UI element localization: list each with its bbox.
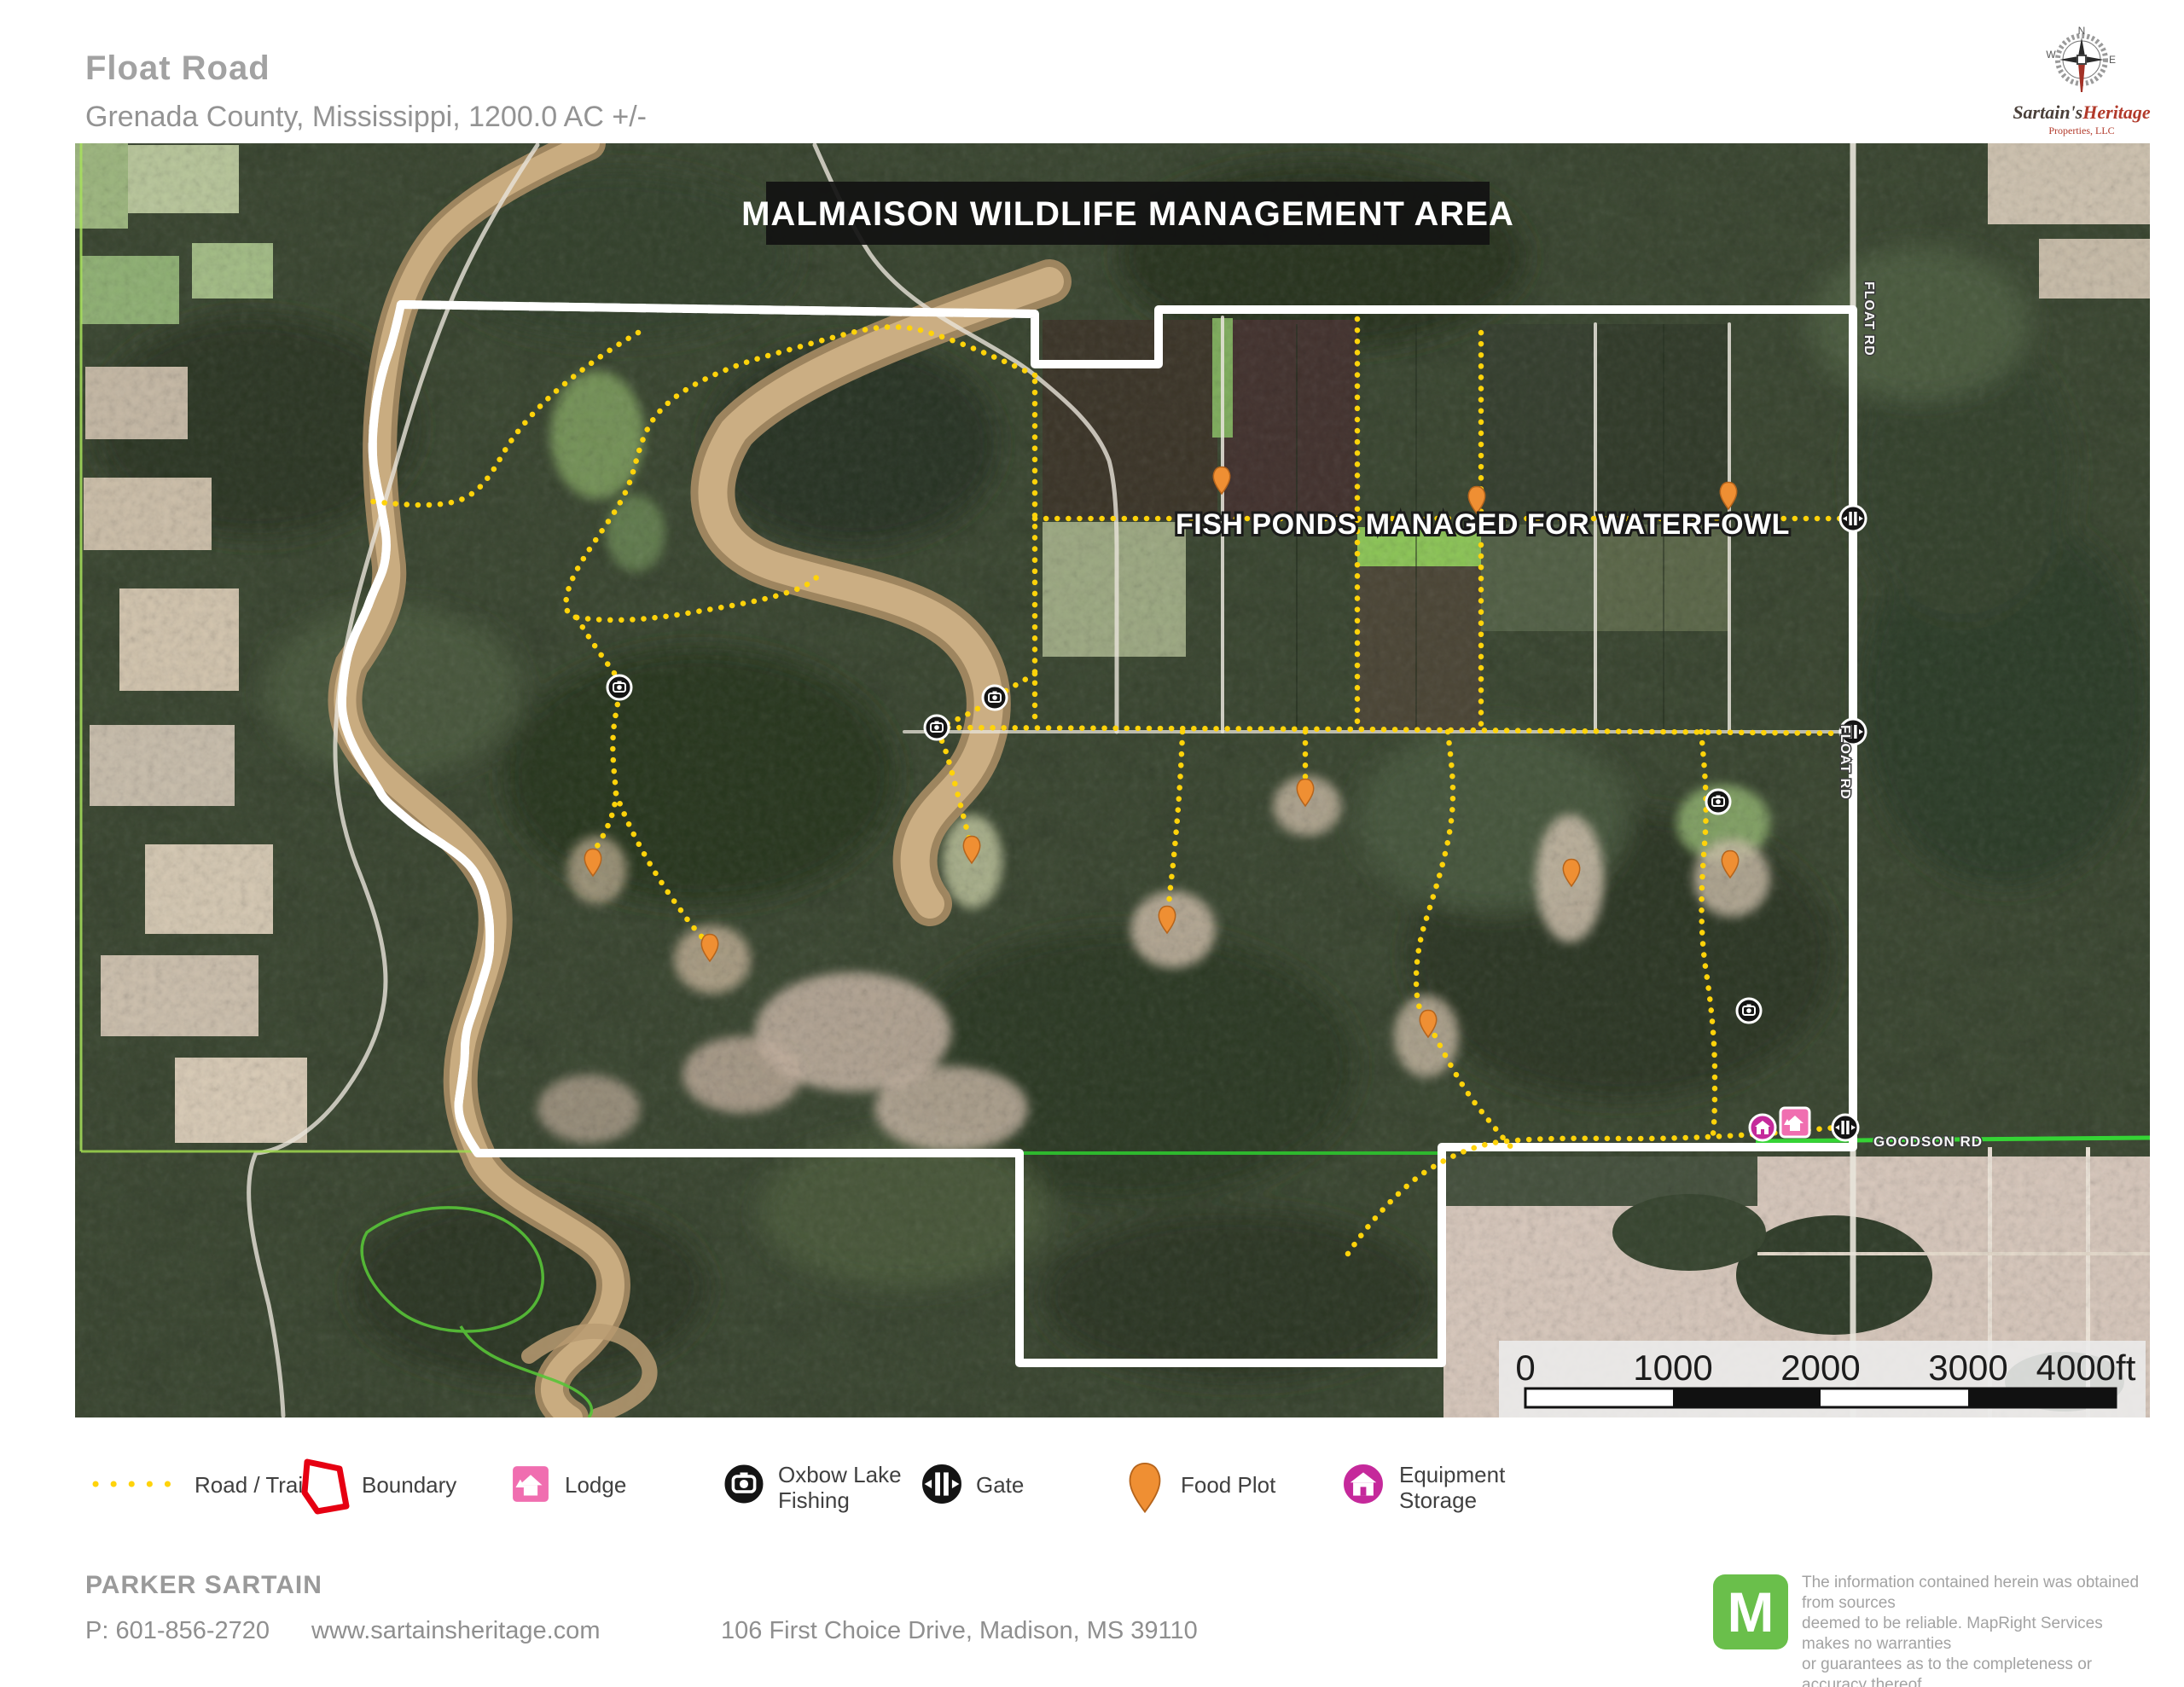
oxbow-lake-fishing-icon [1737,999,1761,1023]
float-rd-label: FLOAT RD [1862,281,1876,357]
scale-bar: 0 1000 2000 3000 4000ft [1499,1341,2146,1419]
legend-label-lodge: Lodge [565,1472,626,1498]
fish-ponds-label: FISH PONDS MANAGED FOR WATERFOWL [1176,508,1790,541]
disclaimer-text: The information contained herein was obt… [1802,1573,2150,1687]
property-map: FLOAT RD FLOAT RD GOODSON RD FISH PONDS … [0,0,2184,1687]
agent-name: PARKER SARTAIN [85,1571,322,1600]
food-plot-legend-icon [1130,1464,1159,1512]
legend-label-food-plot: Food Plot [1181,1472,1276,1498]
oxbow-lake-fishing-icon [1706,790,1730,814]
scale-tick: 4000ft [2036,1348,2136,1388]
oxbow-lake-fishing-icon [925,716,949,739]
scale-tick: 1000 [1633,1348,1712,1388]
gate-legend-icon [921,1463,964,1506]
boundary-legend-icon [305,1462,346,1511]
agency-website: www.sartainsheritage.com [311,1617,600,1645]
equipment-storage-icon [1750,1115,1775,1140]
wma-banner-label: MALMAISON WILDLIFE MANAGEMENT AREA [741,195,1514,233]
gate-icon [1840,506,1866,531]
disclaimer-line: or guarantees as to the completeness or … [1802,1655,2150,1687]
oxbow-lake-fishing-legend-icon [723,1463,765,1505]
legend: Road / Trail Boundary Lodge Oxbow Lake F… [96,1462,1506,1513]
disclaimer-line: deemed to be reliable. MapRight Services… [1802,1614,2150,1655]
map-sheet: Float Road Grenada County, Mississippi, … [0,0,2184,1687]
scale-tick: 3000 [1928,1348,2007,1388]
disclaimer-line: The information contained herein was obt… [1802,1573,2150,1614]
agency-address: 106 First Choice Drive, Madison, MS 3911… [721,1617,1198,1645]
oxbow-lake-fishing-icon [983,686,1007,710]
oxbow-lake-fishing-icon [607,675,631,699]
lodge-icon [1780,1108,1809,1137]
legend-label-equipment-2: Storage [1399,1487,1477,1513]
legend-label-oxbow-2: Fishing [778,1487,850,1513]
wma-banner: MALMAISON WILDLIFE MANAGEMENT AREA [741,182,1514,245]
goodson-rd-label: GOODSON RD [1873,1133,1983,1150]
lodge-legend-icon [511,1464,550,1504]
float-rd-label: FLOAT RD [1838,725,1852,800]
legend-label-oxbow-1: Oxbow Lake [778,1462,902,1487]
agent-phone: P: 601-856-2720 [85,1617,270,1645]
legend-label-road-trail: Road / Trail [195,1472,308,1498]
gate-icon [1833,1115,1858,1140]
scale-tick: 0 [1515,1348,1535,1388]
mapright-logo-icon: M [1713,1574,1788,1649]
legend-label-equipment-1: Equipment [1399,1462,1506,1487]
equipment-storage-legend-icon [1342,1463,1385,1506]
satellite-imagery: FLOAT RD FLOAT RD GOODSON RD FISH PONDS … [75,143,2150,1419]
scale-tick: 2000 [1780,1348,1860,1388]
legend-label-boundary: Boundary [362,1472,456,1498]
legend-label-gate: Gate [976,1472,1024,1498]
